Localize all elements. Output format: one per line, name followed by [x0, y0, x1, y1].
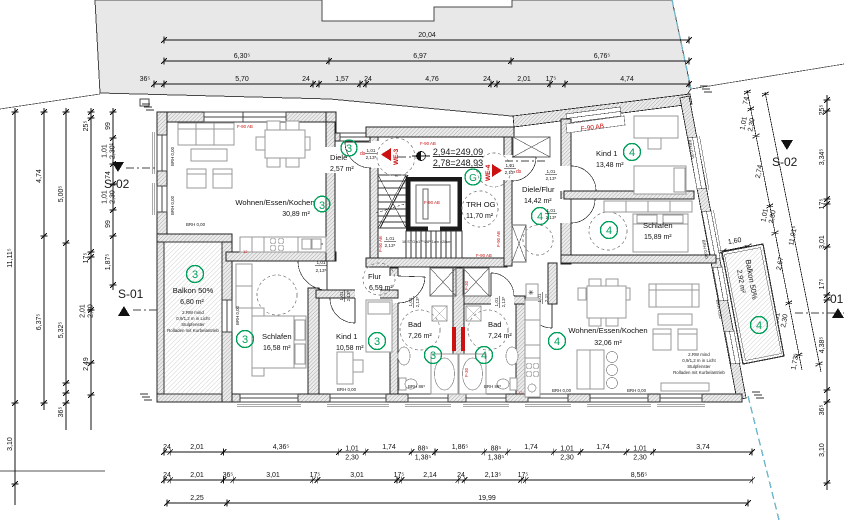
svg-text:2,13⁵: 2,13⁵	[546, 215, 557, 220]
svg-text:0,9/1,2 m in Licht: 0,9/1,2 m in Licht	[176, 316, 210, 321]
svg-text:20,04: 20,04	[418, 32, 436, 39]
svg-text:Rolladen mit Kurbelantrieb: Rolladen mit Kurbelantrieb	[167, 328, 219, 333]
svg-text:11,11⁵: 11,11⁵	[7, 248, 14, 267]
svg-text:S-02: S-02	[104, 177, 130, 191]
svg-text:BRH 0,00: BRH 0,00	[170, 195, 175, 215]
svg-text:4,38⁵: 4,38⁵	[819, 337, 826, 354]
svg-text:BRH 0,00: BRH 0,00	[170, 146, 175, 166]
svg-text:1,57: 1,57	[335, 76, 349, 83]
svg-text:24: 24	[364, 76, 372, 83]
svg-text:2,13⁵: 2,13⁵	[366, 155, 377, 160]
svg-text:3: 3	[192, 269, 198, 281]
svg-text:6,30⁵: 6,30⁵	[234, 53, 251, 60]
svg-text:2,14: 2,14	[423, 472, 437, 479]
svg-text:36⁵: 36⁵	[223, 472, 234, 479]
svg-text:BRH 0,00: BRH 0,00	[627, 388, 647, 393]
svg-text:3: 3	[346, 143, 352, 155]
svg-text:S-01: S-01	[118, 287, 144, 301]
svg-text:24: 24	[302, 76, 310, 83]
svg-text:16 STG x17⁵/28⁵ 1cm =28cm: 16 STG x17⁵/28⁵ 1cm =28cm	[402, 240, 451, 244]
svg-text:2,1⁵: 2,1⁵	[544, 294, 549, 302]
svg-text:Stulpfenster: Stulpfenster	[687, 364, 711, 369]
svg-text:36⁵: 36⁵	[140, 76, 151, 83]
svg-text:1,01: 1,01	[317, 260, 326, 265]
svg-text:2,13⁵: 2,13⁵	[316, 268, 327, 273]
svg-text:1,01: 1,01	[408, 297, 413, 306]
svg-text:Wohnen/Essen/Kochen: Wohnen/Essen/Kochen	[235, 198, 314, 207]
svg-text:BRH 0,00: BRH 0,00	[337, 387, 357, 392]
svg-text:30,89 m²: 30,89 m²	[282, 211, 310, 218]
svg-text:4,36⁵: 4,36⁵	[273, 444, 290, 451]
svg-text:24: 24	[163, 444, 171, 451]
svg-text:7,26 m²: 7,26 m²	[408, 333, 432, 340]
svg-text:24: 24	[483, 76, 491, 83]
svg-text:2,13⁵: 2,13⁵	[501, 296, 506, 307]
svg-text:BRH 0,00: BRH 0,00	[235, 305, 240, 325]
svg-text:6,76⁵: 6,76⁵	[594, 53, 611, 60]
svg-text:Kind 1: Kind 1	[596, 149, 618, 158]
svg-text:BRH 0,00: BRH 0,00	[186, 222, 206, 227]
svg-text:2,13⁵: 2,13⁵	[385, 243, 396, 248]
svg-text:4: 4	[537, 211, 543, 223]
svg-text:8,56⁵: 8,56⁵	[631, 472, 648, 479]
svg-text:F-30: F-30	[464, 280, 469, 290]
svg-text:17⁵: 17⁵	[518, 472, 529, 479]
svg-text:2,30: 2,30	[88, 304, 95, 318]
svg-text:17⁵: 17⁵	[819, 279, 826, 290]
svg-text:WE-4: WE-4	[485, 164, 492, 181]
svg-text:1,74: 1,74	[596, 444, 610, 451]
svg-text:16,58 m²: 16,58 m²	[263, 345, 291, 352]
svg-text:Stulpfenster: Stulpfenster	[181, 322, 205, 327]
svg-text:BRH 86⁵: BRH 86⁵	[408, 384, 425, 389]
svg-text:25⁵: 25⁵	[819, 105, 826, 116]
svg-text:✳: ✳	[528, 289, 534, 297]
svg-text:88⁵: 88⁵	[491, 446, 502, 453]
svg-text:WE-3: WE-3	[393, 148, 400, 165]
svg-text:99: 99	[105, 220, 112, 228]
svg-text:1,01: 1,01	[633, 446, 647, 453]
svg-text:17⁵: 17⁵	[310, 472, 321, 479]
svg-text:1,86⁵: 1,86⁵	[452, 444, 469, 451]
svg-text:12: 12	[243, 249, 248, 254]
svg-text:Bad: Bad	[408, 320, 422, 329]
svg-text:2,13⁵: 2,13⁵	[485, 472, 502, 479]
svg-text:Balkon 50%: Balkon 50%	[173, 286, 214, 295]
svg-text:1,01: 1,01	[386, 236, 395, 241]
svg-text:Diele/Flur: Diele/Flur	[522, 185, 555, 194]
svg-text:4: 4	[481, 350, 487, 362]
svg-text:7,24 m²: 7,24 m²	[488, 333, 512, 340]
svg-text:2,13⁵: 2,13⁵	[346, 290, 351, 301]
svg-text:2,25: 2,25	[190, 495, 204, 502]
svg-text:24: 24	[457, 472, 465, 479]
svg-text:2,57 m²: 2,57 m²	[330, 166, 354, 173]
svg-text:1,74: 1,74	[524, 444, 538, 451]
svg-text:F-30: F-30	[464, 367, 469, 377]
svg-text:74: 74	[742, 96, 750, 105]
svg-text:F-90 AB: F-90 AB	[237, 124, 253, 129]
svg-text:15,89 m²: 15,89 m²	[644, 234, 672, 241]
svg-text:4,74: 4,74	[620, 76, 634, 83]
svg-text:F-90 AB: F-90 AB	[424, 200, 440, 205]
svg-text:Schlafen: Schlafen	[262, 332, 292, 341]
svg-text:3: 3	[430, 350, 436, 362]
svg-text:F-90 AB: F-90 AB	[420, 141, 436, 146]
svg-text:99: 99	[105, 122, 112, 130]
svg-text:2,01: 2,01	[517, 76, 531, 83]
svg-text:BRH 0,00: BRH 0,00	[552, 388, 572, 393]
svg-text:4,76: 4,76	[425, 76, 439, 83]
svg-text:1,01: 1,01	[506, 163, 515, 168]
svg-text:3,10: 3,10	[819, 443, 826, 457]
svg-text:5,70: 5,70	[235, 76, 249, 83]
svg-text:3,74: 3,74	[696, 444, 710, 451]
svg-text:Rolladen mit Kurbelantrieb: Rolladen mit Kurbelantrieb	[673, 370, 725, 375]
svg-text:19,99: 19,99	[478, 495, 496, 502]
svg-text:Flur: Flur	[368, 272, 382, 281]
svg-text:10,58 m²: 10,58 m²	[336, 345, 364, 352]
svg-text:2,13⁵: 2,13⁵	[415, 296, 420, 307]
svg-text:2,30: 2,30	[110, 190, 117, 204]
svg-text:36⁵: 36⁵	[819, 405, 826, 416]
svg-text:6,37⁵: 6,37⁵	[36, 314, 43, 331]
svg-text:1,38⁵: 1,38⁵	[488, 455, 505, 462]
svg-text:2.RW mind: 2.RW mind	[688, 352, 710, 357]
svg-text:3,10: 3,10	[7, 437, 14, 451]
svg-text:6,59 m²: 6,59 m²	[369, 285, 393, 292]
svg-text:2.RW mind: 2.RW mind	[182, 310, 204, 315]
svg-text:88⁵: 88⁵	[418, 446, 429, 453]
svg-text:1,01: 1,01	[102, 144, 109, 158]
svg-text:1,01: 1,01	[102, 190, 109, 204]
svg-text:3,01: 3,01	[819, 235, 826, 249]
svg-text:0,9/1,2 m in Licht: 0,9/1,2 m in Licht	[682, 358, 716, 363]
svg-text:3,34⁵: 3,34⁵	[819, 149, 826, 166]
svg-text:F-90 AB: F-90 AB	[496, 231, 501, 247]
svg-text:3: 3	[242, 334, 248, 346]
svg-text:24: 24	[163, 472, 171, 479]
svg-text:-01: -01	[826, 292, 844, 306]
svg-text:1,01: 1,01	[547, 208, 556, 213]
svg-text:1,01: 1,01	[367, 148, 376, 153]
svg-text:F-90 AB: F-90 AB	[378, 236, 383, 252]
svg-text:4: 4	[756, 320, 762, 332]
svg-text:6,80 m²: 6,80 m²	[180, 299, 204, 306]
svg-text:3: 3	[319, 200, 325, 212]
svg-text:5,32⁵: 5,32⁵	[58, 322, 65, 339]
svg-text:S-02: S-02	[772, 155, 798, 169]
svg-text:4: 4	[554, 336, 560, 348]
svg-text:17⁵: 17⁵	[394, 472, 405, 479]
svg-text:F-90 AB: F-90 AB	[476, 253, 492, 258]
svg-text:2,49: 2,49	[83, 357, 90, 371]
svg-text:17⁵: 17⁵	[819, 199, 826, 210]
svg-text:1,01: 1,01	[560, 446, 574, 453]
svg-text:1,87⁵: 1,87⁵	[105, 254, 112, 271]
svg-text:3: 3	[374, 336, 380, 348]
svg-text:Bad: Bad	[488, 320, 502, 329]
svg-text:11,70 m²: 11,70 m²	[466, 213, 494, 220]
svg-text:2,30: 2,30	[345, 455, 359, 462]
svg-text:G: G	[469, 173, 477, 184]
svg-text:2,30: 2,30	[633, 455, 647, 462]
svg-text:6,97: 6,97	[413, 53, 427, 60]
svg-text:4,74: 4,74	[36, 169, 43, 183]
svg-text:4: 4	[606, 225, 612, 237]
svg-text:Wohnen/Essen/Kochen: Wohnen/Essen/Kochen	[568, 326, 647, 335]
svg-text:BRH 86⁵: BRH 86⁵	[484, 384, 501, 389]
svg-text:32,06 m²: 32,06 m²	[594, 340, 622, 347]
svg-text:1,74: 1,74	[382, 444, 396, 451]
svg-text:12: 12	[518, 390, 523, 395]
svg-text:3,01: 3,01	[266, 472, 280, 479]
svg-text:2,13⁵: 2,13⁵	[546, 176, 557, 181]
svg-text:17⁵: 17⁵	[83, 253, 90, 264]
svg-text:5,00⁵: 5,00⁵	[58, 186, 65, 203]
svg-text:Schlafen: Schlafen	[643, 221, 673, 230]
svg-text:3,01: 3,01	[350, 472, 364, 479]
svg-text:ds: ds	[516, 169, 522, 175]
svg-text:1,01: 1,01	[494, 297, 499, 306]
svg-text:1,01: 1,01	[339, 291, 344, 300]
svg-text:2,78=248,93: 2,78=248,93	[433, 158, 483, 168]
svg-text:4: 4	[629, 147, 635, 159]
svg-text:17⁵: 17⁵	[546, 76, 557, 83]
svg-text:2,01: 2,01	[80, 304, 87, 318]
svg-text:2,13⁵: 2,13⁵	[505, 170, 516, 175]
svg-text:1,01: 1,01	[345, 446, 359, 453]
svg-text:2,30¹: 2,30¹	[110, 142, 117, 159]
svg-text:25⁵: 25⁵	[83, 121, 90, 132]
svg-text:1,38⁵: 1,38⁵	[415, 455, 432, 462]
svg-text:13,48 m²: 13,48 m²	[596, 162, 624, 169]
svg-text:2,94=249,09: 2,94=249,09	[433, 147, 483, 157]
svg-text:2,30: 2,30	[560, 455, 574, 462]
svg-text:Kind 1: Kind 1	[336, 332, 358, 341]
svg-text:TRH OG: TRH OG	[466, 200, 496, 209]
svg-text:14,42 m²: 14,42 m²	[524, 198, 552, 205]
svg-text:2,01: 2,01	[190, 444, 204, 451]
svg-text:36⁵: 36⁵	[58, 407, 65, 418]
svg-text:2,01: 2,01	[190, 472, 204, 479]
svg-text:1,01: 1,01	[537, 293, 542, 302]
svg-text:1,01: 1,01	[547, 169, 556, 174]
